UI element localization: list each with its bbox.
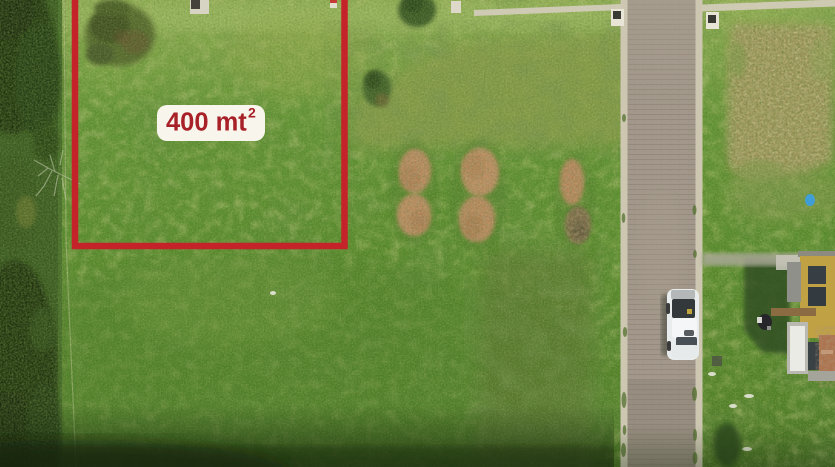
svg-text:400 mt: 400 mt xyxy=(166,109,247,137)
svg-text:2: 2 xyxy=(248,105,256,121)
